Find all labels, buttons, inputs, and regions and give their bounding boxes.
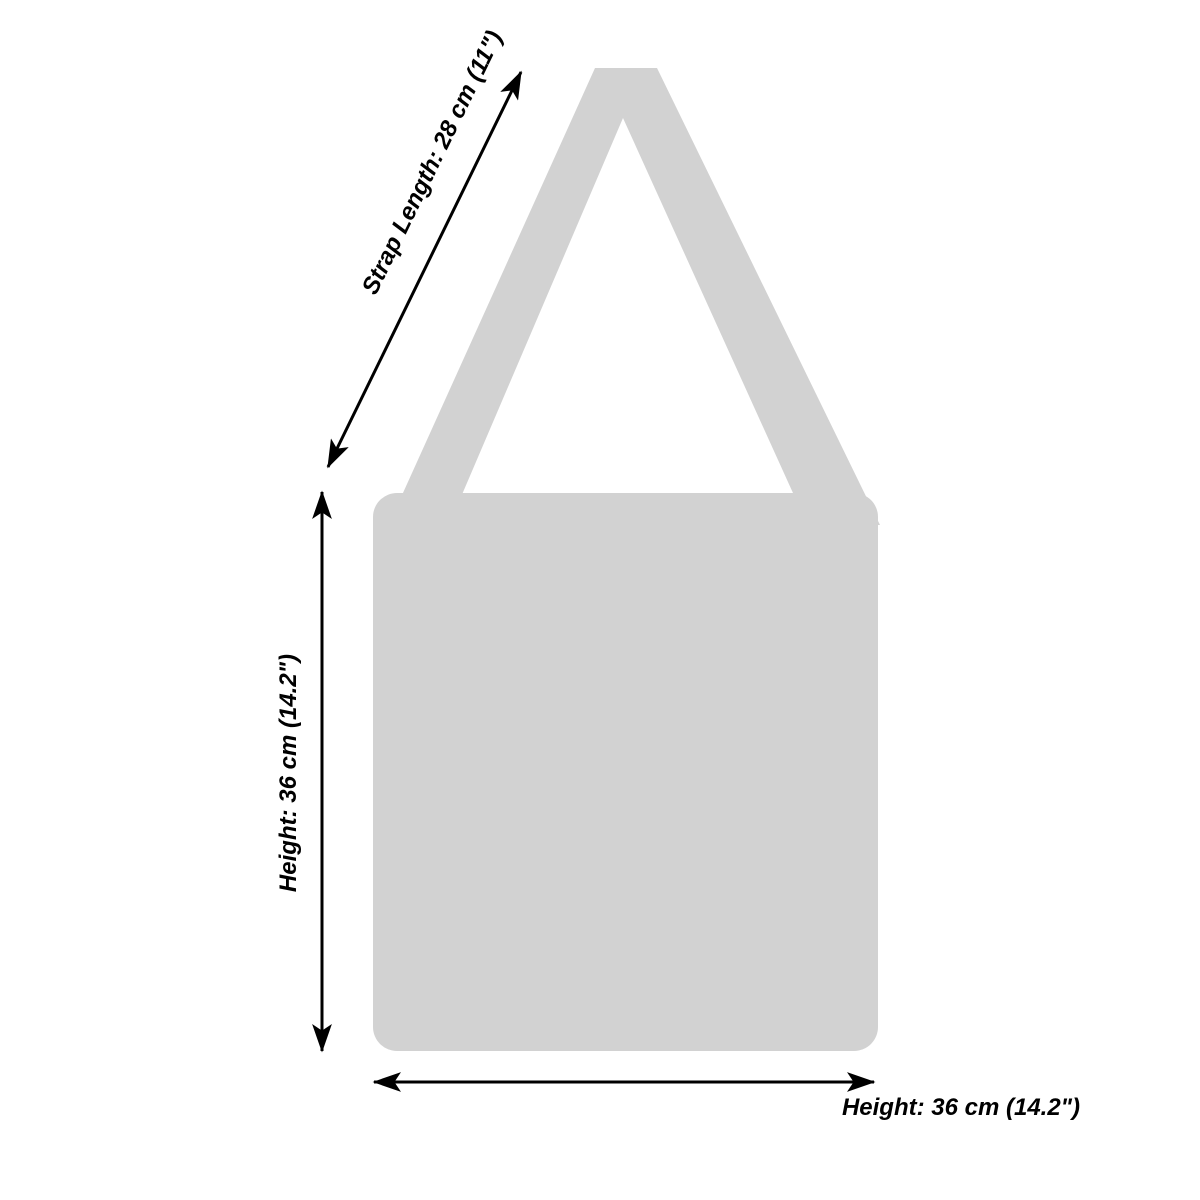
- height-bottom-label: Height: 36 cm (14.2"): [842, 1095, 1080, 1121]
- bag-silhouette-graphic: [0, 0, 1200, 1200]
- bag-strap-shape: [389, 68, 881, 525]
- height-side-label: Height: 36 cm (14.2"): [276, 654, 302, 892]
- bag-dimension-diagram: Strap Length: 28 cm (11") Height: 36 cm …: [0, 0, 1200, 1200]
- bag-body-shape: [373, 493, 878, 1051]
